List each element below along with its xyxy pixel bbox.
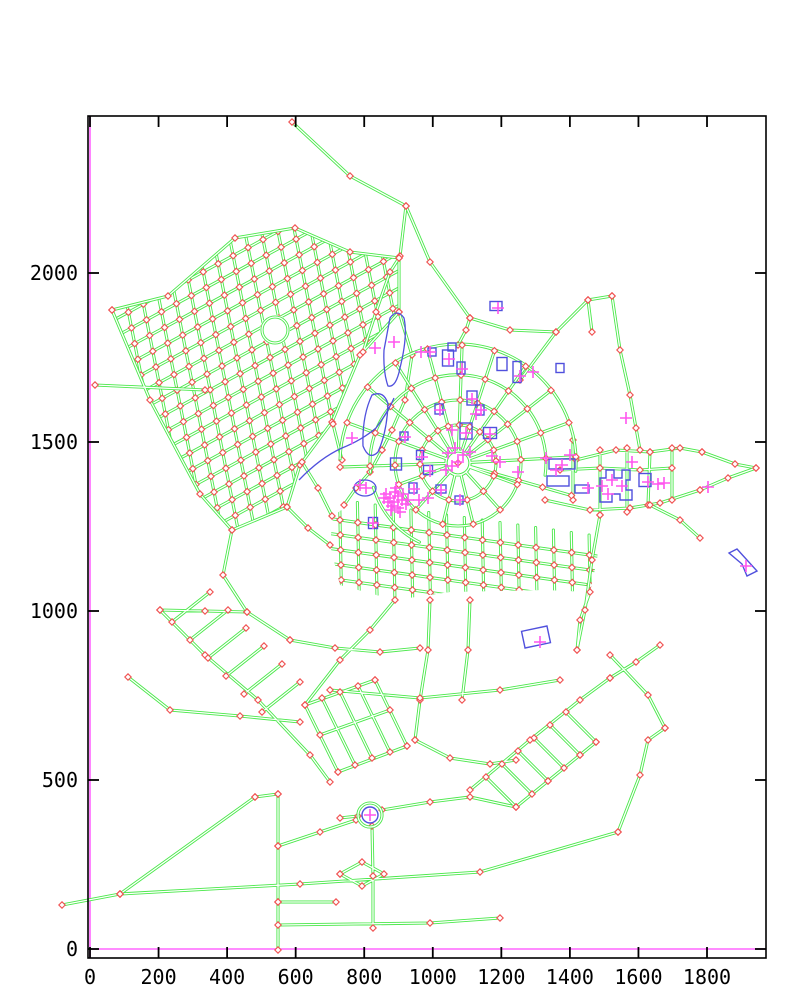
x-axis-tick-label: 600 [278,965,314,989]
node-marker [132,427,138,433]
node-marker [444,532,450,538]
node-marker [427,559,433,565]
node-marker [551,577,557,583]
node-marker [355,519,361,525]
node-marker [332,645,338,651]
node-marker [440,521,446,527]
node-marker [515,557,521,563]
x-axis-tick-label: 0 [84,965,96,989]
node-marker [425,647,431,653]
node-marker [597,465,603,471]
building-outline [443,350,454,366]
node-marker [647,449,653,455]
node-marker [493,458,499,464]
node-marker [426,529,432,535]
node-marker [589,329,595,335]
node-marker [417,645,423,651]
node-marker [467,597,473,603]
node-marker [533,574,539,580]
node-marker [175,474,181,480]
building-outline [522,626,551,648]
node-marker [497,915,503,921]
node-marker [627,392,633,398]
node-marker [516,572,522,578]
node-marker [135,443,141,449]
node-marker [465,647,471,653]
node-marker [157,466,163,472]
node-marker [181,505,187,511]
node-marker [166,513,172,519]
landmark-cross [388,336,400,348]
node-marker [533,544,539,550]
node-marker [569,579,575,585]
node-marker [184,521,190,527]
node-marker [392,462,398,468]
node-marker [138,458,144,464]
node-marker [427,597,433,603]
landmark-cross [360,482,372,494]
node-marker [337,517,343,523]
node-marker [275,791,281,797]
y-axis-tick-label: 1000 [30,599,78,623]
node-marker [377,649,383,655]
building-outline [409,483,417,493]
node-marker [59,902,65,908]
landmark-cross [702,481,714,493]
node-marker [370,925,376,931]
x-axis-tick-label: 400 [209,965,245,989]
node-marker [426,544,432,550]
node-marker [356,564,362,570]
building-outline [490,302,502,311]
node-marker [338,562,344,568]
node-marker [337,532,343,538]
node-marker [427,574,433,580]
buildings-layer [369,302,758,649]
landmark-cross [658,477,670,489]
node-marker [609,293,615,299]
x-axis-tick-label: 1000 [409,965,457,989]
node-marker [557,677,563,683]
node-marker [574,647,580,653]
node-marker [167,269,173,275]
node-marker [153,450,159,456]
node-marker [242,229,248,235]
node-marker [356,594,362,600]
node-marker [533,559,539,565]
x-axis-tick-label: 200 [140,965,176,989]
grid-street-core [325,500,609,648]
y-axis-tick-label: 500 [42,768,78,792]
axis-layer: 0200400600800100012001400160018000500100… [30,116,766,989]
node-marker [172,458,178,464]
node-marker [237,713,243,719]
node-marker [355,534,361,540]
node-marker [117,348,123,354]
node-marker [137,285,143,291]
node-marker [374,582,380,588]
node-marker [163,497,169,503]
node-marker [337,464,343,470]
node-marker [92,382,98,388]
node-marker [275,947,281,953]
node-marker [497,539,503,545]
node-marker [551,562,557,568]
node-marker [444,547,450,553]
node-marker [462,564,468,570]
landmark-cross [596,480,608,492]
node-marker [182,261,188,267]
landmark-cross [652,478,664,490]
node-marker [150,435,156,441]
grid-street-outer [325,500,609,648]
node-marker [333,899,339,905]
map-plot-window: 0200400600800100012001400160018000500100… [0,0,800,1000]
node-marker [197,253,203,259]
y-axis-tick-label: 1500 [30,430,78,454]
node-marker [338,577,344,583]
building-outline [497,358,507,371]
node-marker [409,557,415,563]
x-axis-tick-label: 1600 [614,965,662,989]
node-marker [275,922,281,928]
node-marker [408,542,414,548]
node-marker [202,608,208,614]
node-marker [212,245,218,251]
node-marker [355,549,361,555]
node-marker [391,569,397,575]
node-marker [637,467,643,473]
node-marker [129,411,135,417]
node-marker [551,547,557,553]
landmark-cross [413,494,425,506]
y-axis-tick-label: 0 [66,937,78,961]
node-marker [373,552,379,558]
node-marker [409,572,415,578]
node-marker [338,592,344,598]
node-marker [487,761,493,767]
node-marker [497,687,503,693]
building-outline [575,485,589,493]
node-marker [480,552,486,558]
node-marker [275,899,281,905]
node-marker [297,881,303,887]
node-marker [145,490,151,496]
node-marker [498,584,504,590]
node-marker [199,513,205,519]
node-marker [427,920,433,926]
building-outline [547,476,569,486]
node-marker [458,372,464,378]
node-marker [391,584,397,590]
street-grid-nw-grid [89,117,518,619]
node-marker [445,577,451,583]
node-marker [147,419,153,425]
x-axis-tick-label: 1400 [546,965,594,989]
node-marker [498,569,504,575]
plaza-mask [260,315,290,345]
node-marker [542,497,548,503]
node-marker [151,521,157,527]
landmark-cross [620,412,632,424]
node-marker [479,537,485,543]
node-marker [409,587,415,593]
street-grid-east-grid [325,500,609,648]
node-marker [356,579,362,585]
node-marker [337,815,343,821]
node-marker [597,512,603,518]
node-marker [445,423,451,429]
node-marker [462,579,468,585]
node-marker [462,549,468,555]
node-marker [444,562,450,568]
node-marker [120,364,126,370]
node-marker [196,497,202,503]
node-marker [677,445,683,451]
axis-frame [88,116,766,958]
node-marker [497,554,503,560]
x-axis-tick-label: 800 [346,965,382,989]
node-marker [569,564,575,570]
plaza [260,315,290,345]
node-marker [113,333,119,339]
node-marker [126,396,132,402]
node-marker [427,799,433,805]
city-network-map-canvas[interactable]: 0200400600800100012001400160018000500100… [0,0,800,1000]
node-marker [587,507,593,513]
node-marker [297,719,303,725]
node-marker [391,554,397,560]
node-marker [327,687,333,693]
ring-road-fan [337,342,579,542]
node-marker [337,547,343,553]
landmark-cross [346,432,358,444]
node-marker [178,489,184,495]
landmark-cross [540,452,552,464]
node-marker [516,587,522,593]
x-axis-tick-label: 1800 [683,965,731,989]
node-marker [122,293,128,299]
landmark-cross [582,482,594,494]
node-marker [459,697,465,703]
building-outline [556,364,564,373]
node-marker [374,597,380,603]
node-marker [480,567,486,573]
zero-lines-layer [88,116,766,958]
node-marker [518,457,524,463]
x-axis-tick-label: 1200 [477,965,525,989]
node-marker [462,534,468,540]
node-marker [467,794,473,800]
node-marker [617,347,623,353]
node-marker [391,539,397,545]
node-marker [513,757,519,763]
node-marker [160,482,166,488]
landmark-cross [740,560,752,572]
node-marker [148,505,154,511]
node-marker [613,447,619,453]
node-marker [568,549,574,555]
node-marker [144,403,150,409]
node-marker [152,277,158,283]
node-marker [515,542,521,548]
node-marker [470,521,476,527]
node-marker [446,497,452,503]
node-marker [408,527,414,533]
node-marker [142,474,148,480]
node-marker [480,582,486,588]
node-marker [373,537,379,543]
node-marker [427,589,433,595]
landmark-cross [606,474,618,486]
node-marker [373,567,379,573]
north-arrow [729,549,757,576]
node-marker [669,465,675,471]
node-marker [633,425,639,431]
node-marker [457,397,463,403]
y-axis-tick-label: 2000 [30,261,78,285]
